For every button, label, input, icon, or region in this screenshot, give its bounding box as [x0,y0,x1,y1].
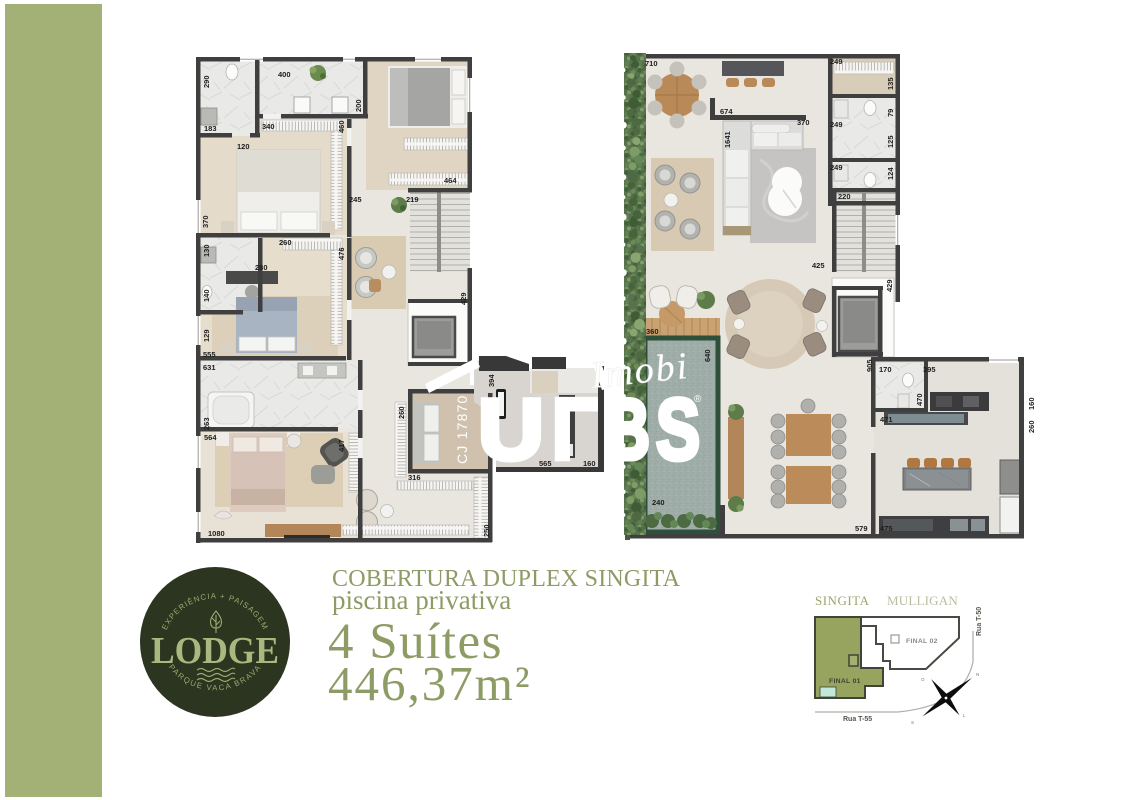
svg-text:B: B [604,382,650,478]
svg-text:S: S [911,720,914,725]
svg-text:316: 316 [408,473,421,482]
svg-text:425: 425 [812,261,825,270]
svg-text:290: 290 [202,75,211,88]
svg-text:FINAL 01: FINAL 01 [829,678,861,685]
svg-text:370: 370 [201,215,210,228]
svg-text:CJ 17870: CJ 17870 [454,394,470,464]
svg-text:464: 464 [444,176,457,185]
svg-text:400: 400 [278,70,291,79]
svg-text:476: 476 [337,247,346,260]
svg-text:Rua T-55: Rua T-55 [843,716,872,723]
svg-text:U: U [478,382,544,478]
svg-text:219: 219 [406,195,419,204]
svg-text:249: 249 [830,57,843,66]
svg-text:129: 129 [202,329,211,342]
svg-text:FINAL 02: FINAL 02 [906,638,938,645]
svg-text:579: 579 [855,524,868,533]
svg-text:395: 395 [923,365,936,374]
svg-text:260: 260 [397,406,406,419]
svg-text:429: 429 [459,292,468,305]
svg-text:120: 120 [237,142,250,151]
svg-text:N: N [976,672,979,677]
svg-text:260: 260 [279,238,292,247]
svg-text:MULLIGAN: MULLIGAN [887,593,958,608]
svg-text:160: 160 [1027,397,1036,410]
svg-text:280: 280 [255,263,268,272]
svg-text:417: 417 [337,439,346,452]
svg-text:631: 631 [203,363,216,372]
svg-text:SINGITA: SINGITA [815,593,870,608]
svg-text:249: 249 [830,163,843,172]
svg-text:piscina privativa: piscina privativa [332,585,511,615]
svg-text:446,37m²: 446,37m² [328,656,532,711]
svg-text:170: 170 [879,365,892,374]
svg-text:905: 905 [865,359,874,372]
svg-text:124: 124 [886,167,895,180]
svg-text:140: 140 [202,289,211,302]
svg-text:263: 263 [202,417,211,430]
svg-text:249: 249 [830,120,843,129]
svg-text:460: 460 [337,120,346,133]
svg-text:200: 200 [354,99,363,112]
svg-text:125: 125 [886,135,895,148]
svg-text:Γ: Γ [552,382,597,478]
svg-text:370: 370 [797,118,810,127]
svg-text:®: ® [694,394,702,405]
svg-text:1080: 1080 [208,529,225,538]
svg-text:674: 674 [720,107,733,116]
svg-text:245: 245 [349,195,362,204]
svg-text:429: 429 [885,279,894,292]
svg-text:340: 340 [262,122,275,131]
svg-text:O: O [921,677,925,682]
svg-text:470: 470 [915,393,924,406]
svg-text:475: 475 [880,524,893,533]
svg-text:710: 710 [645,59,658,68]
svg-text:183: 183 [204,124,217,133]
svg-text:Rua T-50: Rua T-50 [976,607,983,636]
svg-text:360: 360 [646,327,659,336]
svg-text:471: 471 [880,415,893,424]
svg-text:240: 240 [652,498,665,507]
svg-text:640: 640 [703,349,712,362]
svg-text:564: 564 [204,433,217,442]
svg-text:260: 260 [1027,420,1036,433]
svg-text:79: 79 [886,109,895,117]
svg-text:1641: 1641 [723,131,732,148]
svg-text:220: 220 [838,192,851,201]
svg-text:130: 130 [202,244,211,257]
svg-text:250: 250 [482,524,491,537]
svg-text:555: 555 [203,350,216,359]
svg-text:135: 135 [886,77,895,90]
